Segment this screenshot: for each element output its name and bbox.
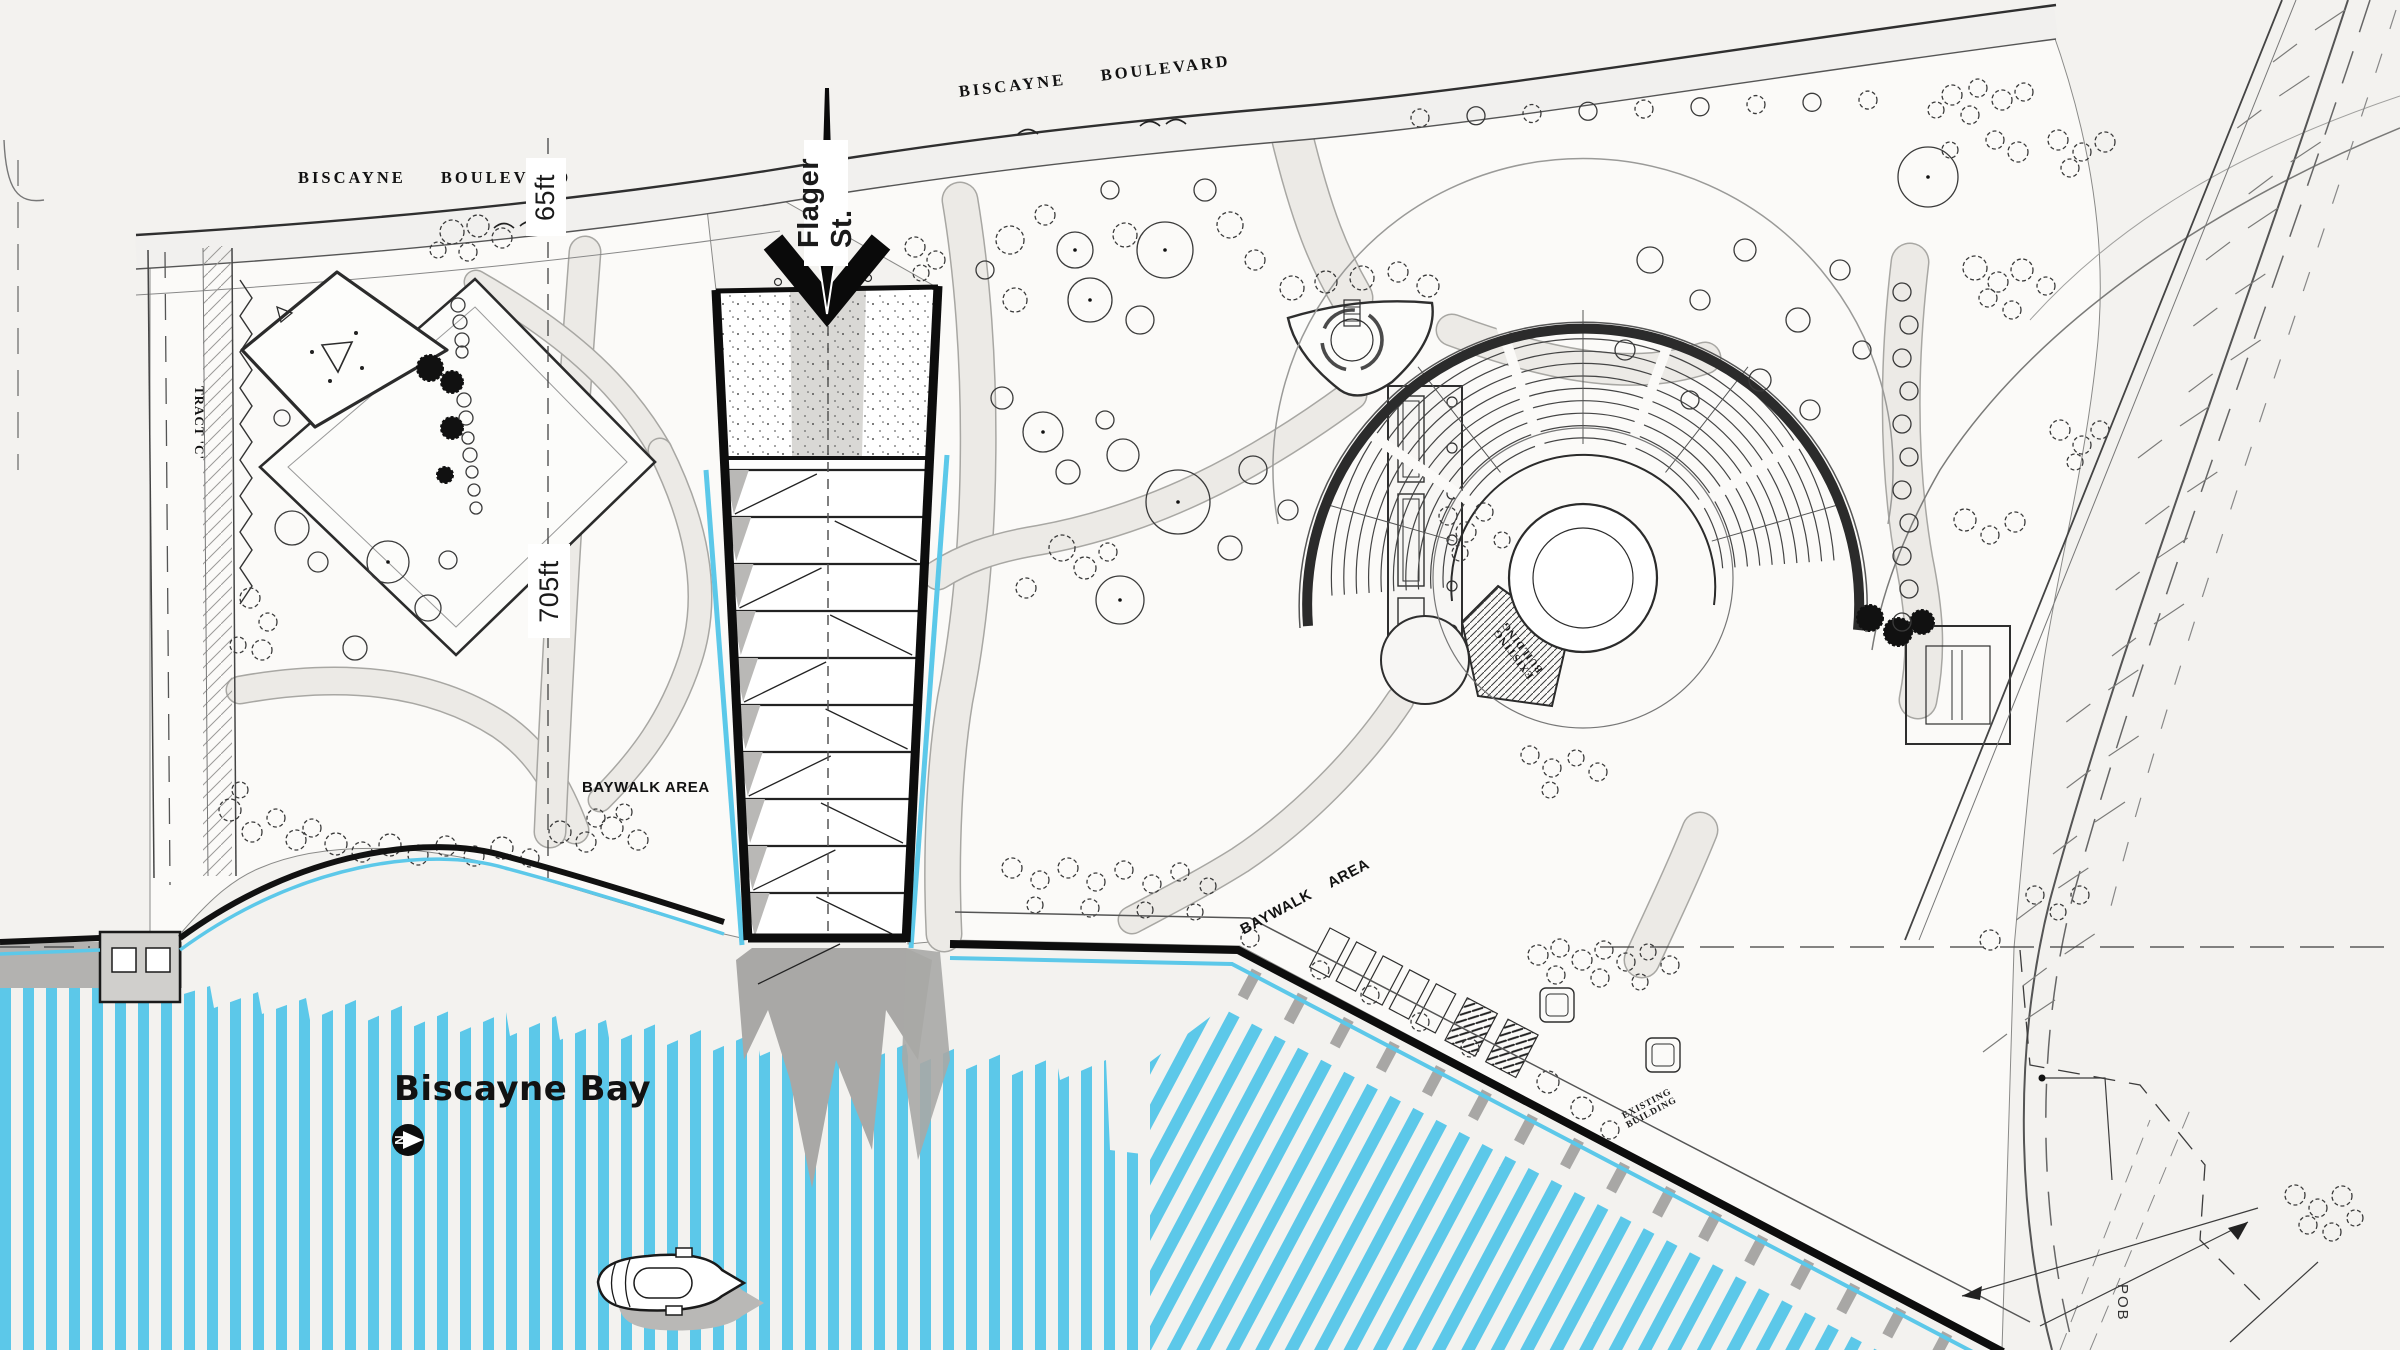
tree bbox=[441, 371, 463, 393]
tree bbox=[441, 417, 463, 439]
wedge-pier bbox=[706, 286, 947, 984]
tree bbox=[1884, 618, 1912, 646]
biscayne-bay-label: Biscayne Bay bbox=[394, 1072, 651, 1106]
tree-center-dot bbox=[1926, 175, 1930, 179]
baywalk-area-label-left: BAYWALK AREA bbox=[582, 780, 710, 795]
site-plan-drawing: EXISTING BUILDING bbox=[0, 0, 2400, 1350]
dimension-705ft: 705ft bbox=[528, 544, 570, 638]
tree-center-dot bbox=[1118, 598, 1122, 602]
tree bbox=[1857, 605, 1883, 631]
tree-center-dot bbox=[1073, 248, 1077, 252]
north-letter: N bbox=[392, 1135, 407, 1144]
tree bbox=[417, 355, 443, 381]
tree-center-dot bbox=[1176, 500, 1180, 504]
tree-center-dot bbox=[386, 560, 390, 564]
tree-center-dot bbox=[1088, 298, 1092, 302]
tree-center-dot bbox=[1041, 430, 1045, 434]
north-arrow-icon: N bbox=[392, 1124, 424, 1156]
tree bbox=[1910, 610, 1934, 634]
tree bbox=[437, 467, 453, 483]
dimension-65ft: 65ft bbox=[526, 158, 566, 236]
flagler-street-label: Flager St. bbox=[804, 140, 848, 266]
tract-c-label: TRACT 'C' bbox=[193, 386, 206, 460]
site-plan: EXISTING BUILDING bbox=[0, 0, 2400, 1350]
tree-center-dot bbox=[1163, 248, 1167, 252]
pob-label: POB bbox=[2115, 1284, 2130, 1322]
